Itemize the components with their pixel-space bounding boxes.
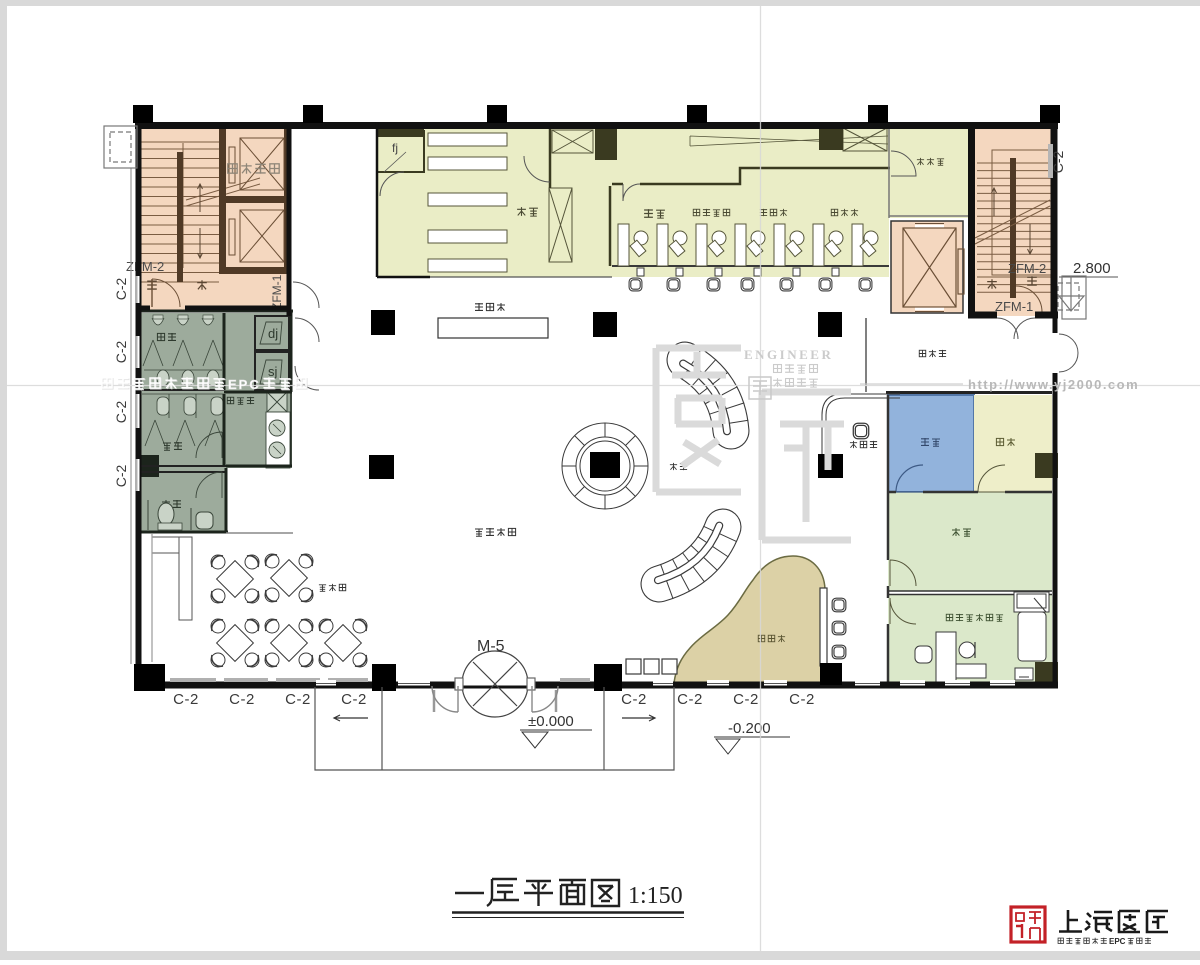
svg-text:C-2: C-2 [229,691,255,708]
svg-text:dj: dj [268,326,278,341]
svg-text:C-2: C-2 [285,691,311,708]
svg-text:2.800: 2.800 [1073,260,1111,277]
svg-text:-0.200: -0.200 [728,720,771,737]
svg-text:ZFM-1: ZFM-1 [270,274,284,310]
svg-text:EPC: EPC [228,377,261,392]
svg-text:C-2: C-2 [621,691,647,708]
svg-text:C-2: C-2 [113,465,129,488]
svg-text:ZFM-2: ZFM-2 [1008,261,1046,276]
svg-text:C-2: C-2 [1050,151,1066,174]
svg-text:C-2: C-2 [113,401,129,424]
svg-text:C-2: C-2 [173,691,199,708]
svg-text:±0.000: ±0.000 [528,713,574,730]
svg-text:EPC: EPC [1109,937,1126,946]
svg-text:fj: fj [392,141,398,155]
svg-text:ENGINEER: ENGINEER [744,347,833,362]
svg-text:C-2: C-2 [677,691,703,708]
svg-text:1:150: 1:150 [628,883,683,909]
svg-text:M-5: M-5 [477,638,505,655]
svg-text:ZFM-2: ZFM-2 [126,259,164,274]
svg-text:C-2: C-2 [341,691,367,708]
svg-text:C-2: C-2 [733,691,759,708]
svg-text:sj: sj [268,364,278,379]
svg-text:http://www.yj2000.com: http://www.yj2000.com [968,377,1139,392]
svg-text:C-2: C-2 [113,278,129,301]
svg-text:C-2: C-2 [789,691,815,708]
svg-text:ZFM-1: ZFM-1 [995,299,1033,314]
svg-text:C-2: C-2 [113,341,129,364]
